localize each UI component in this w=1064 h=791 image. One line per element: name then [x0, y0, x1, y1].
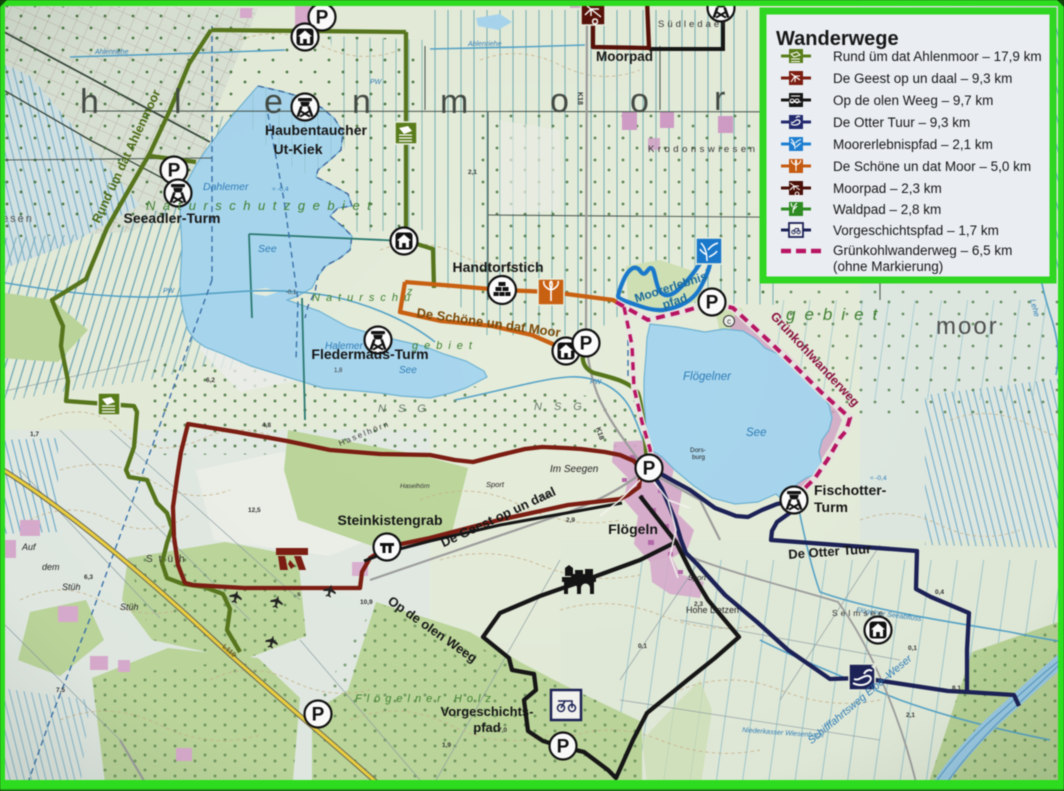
- svg-text:Grünkohlwanderweg – 6,5 km: Grünkohlwanderweg – 6,5 km: [833, 243, 1012, 258]
- svg-text:Moorerlebnispfad – 2,1 km: Moorerlebnispfad – 2,1 km: [833, 137, 993, 152]
- svg-text:(ohne Markierung): (ohne Markierung): [833, 259, 943, 274]
- svg-text:Moorpad – 2,3 km: Moorpad – 2,3 km: [833, 181, 942, 196]
- svg-text:De Otter Tuur – 9,3 km: De Otter Tuur – 9,3 km: [833, 115, 970, 130]
- svg-text:Wanderwege: Wanderwege: [776, 28, 899, 50]
- svg-text:De Schöne un dat Moor – 5,0 km: De Schöne un dat Moor – 5,0 km: [833, 159, 1031, 174]
- svg-text:Vorgeschichtspfad – 1,7 km: Vorgeschichtspfad – 1,7 km: [833, 223, 999, 238]
- svg-text:De Geest op un daal – 9,3 km: De Geest op un daal – 9,3 km: [833, 71, 1012, 86]
- svg-text:Rund üm dat Ahlenmoor – 17,9 k: Rund üm dat Ahlenmoor – 17,9 km: [833, 49, 1042, 64]
- svg-text:Waldpad – 2,8 km: Waldpad – 2,8 km: [833, 202, 941, 217]
- svg-text:Op de olen Weeg – 9,7 km: Op de olen Weeg – 9,7 km: [833, 93, 993, 108]
